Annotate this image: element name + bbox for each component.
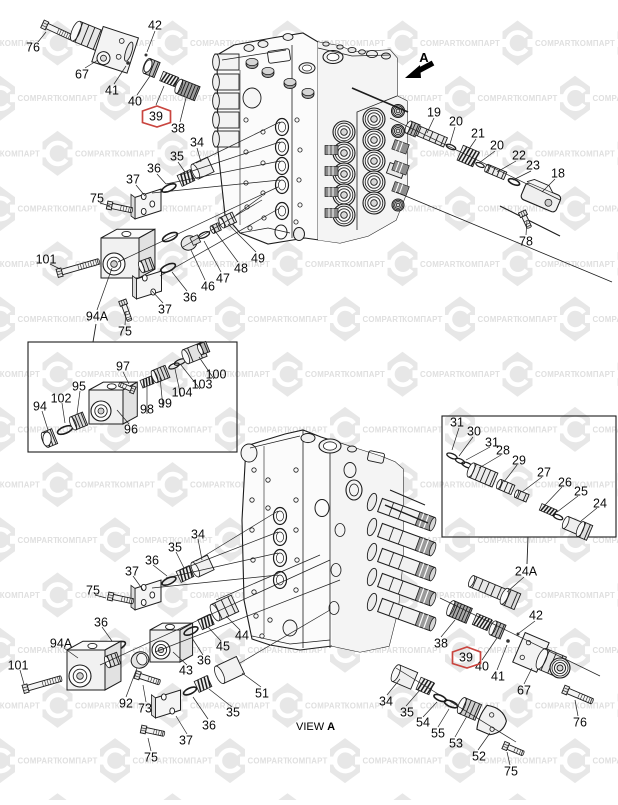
svg-text:КОМПАРТ: КОМПАРТ — [460, 370, 500, 379]
svg-text:22: 22 — [512, 148, 526, 162]
svg-text:67: 67 — [517, 683, 531, 697]
svg-text:94A: 94A — [86, 309, 109, 323]
svg-text:26: 26 — [558, 475, 572, 489]
svg-text:COMPART: COMPART — [18, 205, 59, 214]
svg-text:COMPART: COMPART — [593, 315, 618, 324]
svg-text:75: 75 — [144, 750, 158, 764]
svg-text:39: 39 — [459, 650, 473, 664]
svg-text:КОМПАРТ: КОМПАРТ — [0, 481, 40, 490]
svg-text:КОМПАРТ: КОМПАРТ — [345, 260, 385, 269]
svg-text:36: 36 — [94, 615, 108, 629]
svg-text:35: 35 — [170, 149, 184, 163]
svg-text:75: 75 — [90, 191, 104, 205]
svg-text:КОМПАРТ: КОМПАРТ — [460, 260, 500, 269]
svg-text:КОМПАРТ: КОМПАРТ — [115, 481, 155, 490]
svg-text:COMPART: COMPART — [535, 701, 576, 710]
svg-text:КОМПАРТ: КОМПАРТ — [575, 149, 615, 158]
svg-text:COMPART: COMPART — [593, 94, 618, 103]
svg-text:35: 35 — [400, 705, 414, 719]
svg-text:КОМПАРТ: КОМПАРТ — [517, 425, 557, 434]
svg-text:98: 98 — [140, 402, 154, 416]
svg-text:30: 30 — [467, 424, 481, 438]
svg-text:КОМПАРТ: КОМПАРТ — [230, 370, 270, 379]
svg-text:COMPART: COMPART — [190, 701, 231, 710]
svg-text:COMPART: COMPART — [535, 149, 576, 158]
svg-text:КОМПАРТ: КОМПАРТ — [172, 315, 212, 324]
svg-text:КОМПАРТ: КОМПАРТ — [172, 757, 212, 766]
svg-text:КОМПАРТ: КОМПАРТ — [0, 591, 40, 600]
svg-text:КОМПАРТ: КОМПАРТ — [402, 757, 442, 766]
svg-text:КОМПАРТ: КОМПАРТ — [575, 370, 615, 379]
svg-text:42: 42 — [529, 608, 543, 622]
svg-text:COMPART: COMPART — [18, 536, 59, 545]
svg-text:46: 46 — [201, 279, 215, 293]
svg-text:23: 23 — [526, 158, 540, 172]
svg-text:36: 36 — [197, 653, 211, 667]
svg-text:37: 37 — [125, 564, 139, 578]
svg-text:КОМПАРТ: КОМПАРТ — [460, 39, 500, 48]
svg-text:КОМПАРТ: КОМПАРТ — [0, 701, 40, 710]
svg-text:36: 36 — [202, 718, 216, 732]
svg-text:COMPART: COMPART — [478, 315, 519, 324]
svg-text:55: 55 — [431, 726, 445, 740]
svg-text:КОМПАРТ: КОМПАРТ — [345, 39, 385, 48]
svg-text:КОМПАРТ: КОМПАРТ — [115, 149, 155, 158]
svg-text:COMPART: COMPART — [75, 481, 116, 490]
svg-text:28: 28 — [496, 443, 510, 457]
svg-text:COMPART: COMPART — [190, 39, 231, 48]
svg-text:КОМПАРТ: КОМПАРТ — [575, 591, 615, 600]
svg-text:COMPART: COMPART — [248, 315, 289, 324]
svg-text:COMPART: COMPART — [535, 591, 576, 600]
svg-text:36: 36 — [145, 553, 159, 567]
svg-text:95: 95 — [72, 379, 86, 393]
svg-text:COMPART: COMPART — [75, 370, 116, 379]
svg-text:20: 20 — [490, 138, 504, 152]
svg-text:38: 38 — [171, 121, 185, 135]
svg-text:COMPART: COMPART — [363, 425, 404, 434]
svg-text:102: 102 — [51, 391, 72, 405]
svg-text:COMPART: COMPART — [190, 481, 231, 490]
svg-text:КОМПАРТ: КОМПАРТ — [575, 701, 615, 710]
svg-text:КОМПАРТ: КОМПАРТ — [402, 315, 442, 324]
svg-text:96: 96 — [124, 422, 138, 436]
svg-text:36: 36 — [147, 161, 161, 175]
svg-text:76: 76 — [26, 40, 40, 54]
svg-text:COMPART: COMPART — [18, 757, 59, 766]
svg-text:COMPART: COMPART — [420, 370, 461, 379]
svg-text:КОМПАРТ: КОМПАРТ — [57, 536, 97, 545]
svg-text:40: 40 — [475, 659, 489, 673]
svg-text:34: 34 — [190, 135, 204, 149]
svg-text:COMPART: COMPART — [535, 39, 576, 48]
svg-text:29: 29 — [512, 453, 526, 467]
svg-text:47: 47 — [216, 271, 230, 285]
svg-text:VIEW A: VIEW A — [296, 721, 335, 733]
svg-text:КОМПАРТ: КОМПАРТ — [172, 425, 212, 434]
svg-text:КОМПАРТ: КОМПАРТ — [0, 370, 40, 379]
svg-text:43: 43 — [179, 663, 193, 677]
svg-text:КОМПАРТ: КОМПАРТ — [57, 205, 97, 214]
svg-text:COMPART: COMPART — [593, 205, 618, 214]
svg-text:52: 52 — [472, 749, 486, 763]
svg-text:35: 35 — [226, 705, 240, 719]
svg-text:COMPART: COMPART — [593, 646, 618, 655]
svg-text:КОМПАРТ: КОМПАРТ — [517, 94, 557, 103]
svg-text:COMPART: COMPART — [248, 425, 289, 434]
svg-text:35: 35 — [168, 540, 182, 554]
svg-text:39: 39 — [149, 109, 163, 123]
svg-text:37: 37 — [126, 172, 140, 186]
svg-text:75: 75 — [86, 583, 100, 597]
svg-text:51: 51 — [255, 686, 269, 700]
svg-text:31: 31 — [450, 415, 464, 429]
svg-text:КОМПАРТ: КОМПАРТ — [345, 370, 385, 379]
svg-text:25: 25 — [574, 484, 588, 498]
svg-text:40: 40 — [128, 94, 142, 108]
svg-text:КОМПАРТ: КОМПАРТ — [0, 149, 40, 158]
svg-text:COMPART: COMPART — [420, 481, 461, 490]
svg-text:101: 101 — [8, 658, 29, 672]
svg-text:18: 18 — [551, 166, 565, 180]
svg-text:42: 42 — [148, 18, 162, 32]
svg-text:КОМПАРТ: КОМПАРТ — [575, 260, 615, 269]
svg-text:COMPART: COMPART — [363, 757, 404, 766]
svg-text:54: 54 — [416, 715, 430, 729]
svg-text:COMPART: COMPART — [133, 315, 174, 324]
svg-text:КОМПАРТ: КОМПАРТ — [57, 757, 97, 766]
svg-text:COMPART: COMPART — [478, 425, 519, 434]
svg-text:41: 41 — [491, 669, 505, 683]
svg-text:94: 94 — [33, 399, 47, 413]
svg-text:COMPART: COMPART — [75, 701, 116, 710]
svg-text:COMPART: COMPART — [133, 425, 174, 434]
svg-text:КОМПАРТ: КОМПАРТ — [402, 94, 442, 103]
svg-text:COMPART: COMPART — [363, 315, 404, 324]
svg-text:45: 45 — [216, 639, 230, 653]
svg-text:27: 27 — [537, 465, 551, 479]
svg-text:34: 34 — [379, 694, 393, 708]
svg-text:COMPART: COMPART — [18, 94, 59, 103]
svg-text:COMPART: COMPART — [305, 370, 346, 379]
svg-text:COMPART: COMPART — [18, 315, 59, 324]
svg-text:КОМПАРТ: КОМПАРТ — [402, 425, 442, 434]
svg-text:COMPART: COMPART — [593, 757, 618, 766]
svg-text:36: 36 — [183, 290, 197, 304]
svg-text:24: 24 — [593, 496, 607, 510]
svg-text:24A: 24A — [515, 564, 538, 578]
svg-text:41: 41 — [105, 83, 119, 97]
svg-text:48: 48 — [234, 261, 248, 275]
svg-text:49: 49 — [251, 251, 265, 265]
svg-text:КОМПАРТ: КОМПАРТ — [287, 757, 327, 766]
svg-text:КОМПАРТ: КОМПАРТ — [57, 94, 97, 103]
svg-text:COMPART: COMPART — [305, 701, 346, 710]
svg-text:76: 76 — [573, 715, 587, 729]
svg-text:37: 37 — [179, 733, 193, 747]
svg-text:75: 75 — [118, 324, 132, 338]
svg-text:19: 19 — [427, 105, 441, 119]
svg-text:67: 67 — [75, 67, 89, 81]
svg-text:44: 44 — [235, 628, 249, 642]
svg-text:COMPART: COMPART — [478, 94, 519, 103]
svg-text:99: 99 — [158, 396, 172, 410]
svg-text:75: 75 — [504, 764, 518, 778]
svg-text:78: 78 — [519, 234, 533, 248]
svg-text:COMPART: COMPART — [305, 260, 346, 269]
svg-text:103: 103 — [192, 377, 213, 391]
svg-text:37: 37 — [158, 302, 172, 316]
svg-text:53: 53 — [449, 736, 463, 750]
svg-text:73: 73 — [138, 701, 152, 715]
svg-text:34: 34 — [191, 527, 205, 541]
svg-text:COMPART: COMPART — [420, 260, 461, 269]
svg-text:94A: 94A — [50, 636, 73, 650]
svg-text:38: 38 — [434, 636, 448, 650]
svg-text:104: 104 — [172, 385, 193, 399]
svg-text:92: 92 — [119, 696, 133, 710]
svg-text:20: 20 — [449, 114, 463, 128]
svg-text:101: 101 — [36, 252, 57, 266]
svg-text:КОМПАРТ: КОМПАРТ — [517, 315, 557, 324]
svg-text:КОМПАРТ: КОМПАРТ — [517, 757, 557, 766]
svg-text:КОМПАРТ: КОМПАРТ — [575, 39, 615, 48]
svg-text:КОМПАРТ: КОМПАРТ — [0, 260, 40, 269]
svg-text:COMPART: COMPART — [593, 425, 618, 434]
svg-text:COMPART: COMPART — [75, 149, 116, 158]
svg-text:КОМПАРТ: КОМПАРТ — [287, 315, 327, 324]
svg-text:COMPART: COMPART — [420, 149, 461, 158]
svg-text:COMPART: COMPART — [478, 646, 519, 655]
svg-text:97: 97 — [116, 359, 130, 373]
svg-text:КОМПАРТ: КОМПАРТ — [172, 205, 212, 214]
svg-text:21: 21 — [471, 126, 485, 140]
svg-text:COMPART: COMPART — [535, 370, 576, 379]
svg-text:COMPART: COMPART — [248, 757, 289, 766]
svg-text:COMPART: COMPART — [420, 39, 461, 48]
